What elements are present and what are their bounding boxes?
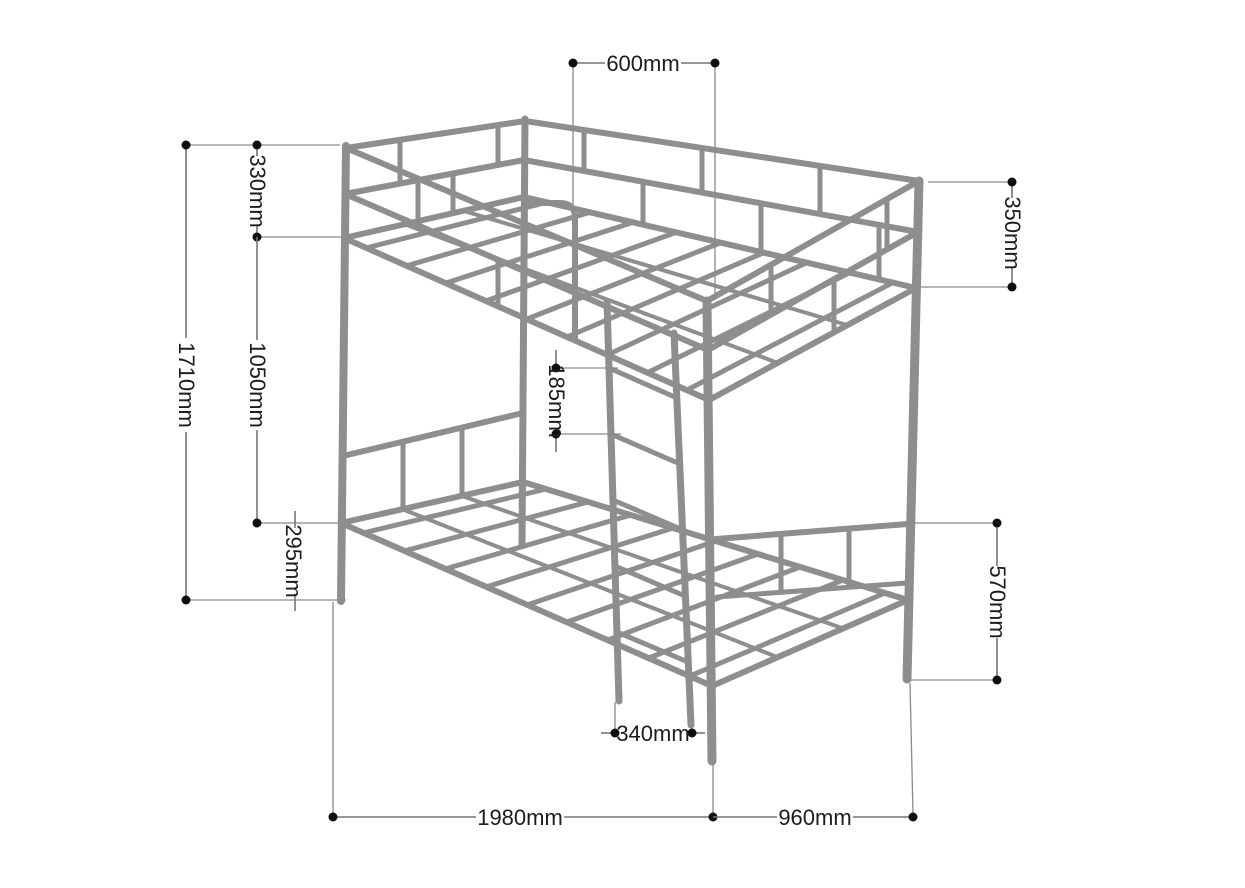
dimension-total-height-part <box>182 596 191 605</box>
dimension-bed-length: 1980mm <box>329 602 718 830</box>
upper-bunk-frame-part <box>709 288 916 400</box>
dimension-bunk-gap-height: 1050mm <box>245 237 346 528</box>
dimension-label: 1710mm <box>174 342 199 428</box>
lower-headboard <box>343 413 523 509</box>
dimension-label: 295mm <box>281 524 306 597</box>
dimension-label: 960mm <box>778 805 851 830</box>
lower-footboard-part <box>716 524 908 539</box>
lower-bunk-frame <box>341 482 908 686</box>
dimension-bed-length-part <box>329 813 338 822</box>
dimension-label: 1050mm <box>245 342 270 428</box>
dimension-ladder-section-top-width-part <box>569 59 578 68</box>
dimension-label: 1980mm <box>477 805 563 830</box>
dimension-label: 185mm <box>544 364 569 437</box>
dimension-total-height-part <box>182 141 191 150</box>
dimension-label: 340mm <box>616 721 689 746</box>
dimension-bed-width-part <box>909 813 918 822</box>
dimension-lower-footboard-height-part <box>993 676 1002 685</box>
dimension-upper-guard-rail-height-part <box>253 141 262 150</box>
drawing-svg: 600mm 330mm 1710mm 1050mm 295mm <box>0 0 1245 888</box>
dimension-label: 350mm <box>1000 196 1025 269</box>
ladder-part <box>611 434 680 464</box>
dimension-rear-guard-rail-height-part <box>1008 178 1017 187</box>
dimension-lower-frame-height: 295mm <box>281 511 306 611</box>
bed-posts-part <box>707 301 712 761</box>
dimension-bed-width-part <box>910 683 913 814</box>
dimension-upper-guard-rail-height: 330mm <box>186 141 342 242</box>
dimension-label: 330mm <box>245 154 270 227</box>
bed-posts-part <box>907 181 919 679</box>
dimension-ladder-section-top-width-part <box>711 59 720 68</box>
upper-guard-head <box>345 121 525 213</box>
upper-guard-rear <box>524 121 919 279</box>
bed-posts-part <box>341 146 346 601</box>
lower-headboard-part <box>343 413 523 456</box>
dimension-lower-footboard-height: 570mm <box>908 519 1010 685</box>
dimension-bed-width: 960mm <box>713 683 918 830</box>
bed-frame <box>341 119 919 761</box>
dimension-label: 600mm <box>606 51 679 76</box>
dimension-lower-footboard-height-part <box>993 519 1002 528</box>
bunk-bed-technical-drawing: 600mm 330mm 1710mm 1050mm 295mm <box>0 0 1245 888</box>
dimension-rear-guard-rail-height: 350mm <box>921 178 1025 292</box>
dimension-bunk-gap-height-part <box>253 519 262 528</box>
dimension-label: 570mm <box>985 565 1010 638</box>
dimension-rear-guard-rail-height-part <box>1008 283 1017 292</box>
